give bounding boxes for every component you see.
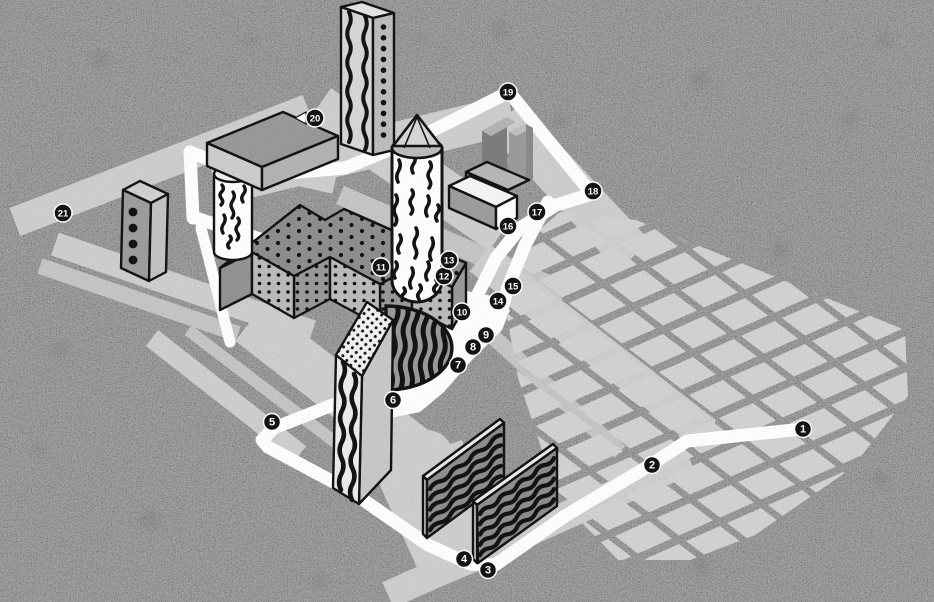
map-canvas: 123456789101112131415161718192021	[0, 0, 934, 602]
grain-overlay	[0, 0, 934, 602]
campus-map-illustration: 123456789101112131415161718192021	[0, 0, 934, 602]
